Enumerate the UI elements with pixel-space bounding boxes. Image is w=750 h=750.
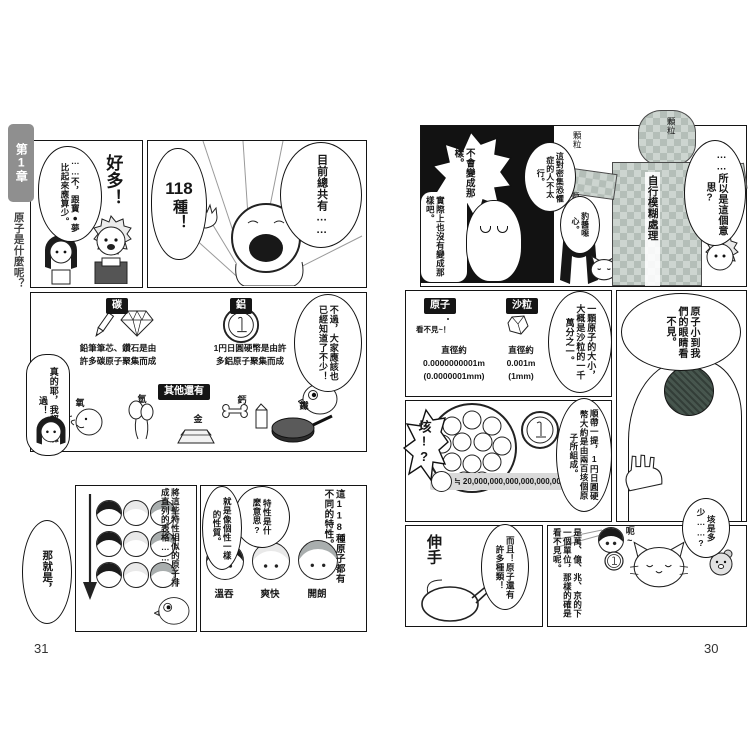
balloons-icon [126, 400, 156, 442]
sand-grain-icon [506, 314, 530, 336]
chapter-tab: 第1章 [8, 124, 34, 202]
sand-label: 沙粒 [506, 298, 538, 314]
reach-sfx: 伸手 [424, 534, 442, 565]
bird-mascot [154, 594, 192, 626]
total-text: 目前總共有…… [314, 152, 327, 238]
carbon-label: 碳 [106, 298, 128, 314]
gai-explanation: 是萬、億、兆、京的下一個單位，那樣的確是看不見呢。 [552, 528, 583, 620]
dark-sphere [664, 366, 714, 416]
mosaic-label: 自行模糊處理 [645, 172, 660, 286]
right-page-number: 30 [704, 641, 718, 656]
gai-question-bubble: 垓是多少……? [682, 498, 730, 558]
cat-character [628, 536, 690, 588]
frying-pan-icon [268, 410, 334, 444]
aluminum-caption-line2: 多鋁原子聚集而成 [216, 356, 284, 366]
bone-and-milk-icon [218, 400, 272, 432]
lead-out-text: 那就是， [41, 542, 54, 602]
ghost-mascot [466, 200, 522, 282]
burst-text: 不會變成那樣。 [452, 148, 475, 206]
traits-narration: 這118種原子都有不同的特性。 [322, 489, 345, 589]
atom-face [96, 500, 122, 526]
trait-question-bubble: 特性是什麼意思? [234, 486, 290, 548]
exclaim-text: 垓!? [416, 420, 432, 465]
manga-spread: 第1章 原子是什麼呢？ ……不，跟寶●夢比起來應算少。 好多！ 118 種！ 目… [0, 0, 750, 750]
trait-question-text: 特性是什麼意思? [252, 495, 272, 539]
atom-face [96, 531, 122, 557]
gai-question-text: 垓是多少……? [696, 506, 716, 550]
atom-face [96, 562, 122, 588]
reply-bubble: ……不，跟寶●夢比起來應算少。 [38, 146, 102, 242]
atom-d2: 0.0000000001m [423, 358, 485, 368]
grain-note: 顆粒 [666, 117, 676, 135]
total-bubble: 目前總共有…… [280, 142, 362, 248]
sand-diameter: 直徑約 0.001m (1mm) [486, 344, 556, 382]
count-unit: 種！ [170, 199, 188, 230]
gross-text: 豹醬噁心。 [570, 204, 589, 246]
more-elements-header: 其他還有 [158, 384, 210, 400]
atom-d3: (0.0000001mm) [424, 371, 485, 381]
trait-label-slow: 溫吞 [206, 586, 242, 600]
meaning-text: ……所以是這個意思? [703, 150, 727, 236]
atom-face [123, 500, 149, 526]
atom-face [123, 531, 149, 557]
carbon-caption-line2: 許多碳原子聚集而成 [80, 356, 157, 366]
grain-note: 顆粒 [572, 131, 582, 149]
atom-label: 原子 [424, 298, 456, 314]
gai-reply: 呃~ [624, 526, 635, 546]
girl-peek-head [32, 410, 70, 450]
known-text: 不過，大家應該也已經知道了不少！ [317, 303, 339, 383]
count-burst-bubble: 118 種！ [151, 148, 207, 260]
lead-out-bubble: 那就是， [22, 520, 72, 624]
breath-icon [64, 404, 104, 440]
peeking-head [598, 527, 624, 553]
bar-coin-icon [431, 471, 452, 492]
comparison-bubble: 一顆原子的大小，大概是沙粒的一千萬分之一。 [548, 291, 612, 393]
sand-d1: 直徑約 [508, 345, 534, 355]
aluminum-label: 鋁 [230, 298, 252, 314]
table-narration: 將這些特性相似的原子排成直列的表格…… [160, 488, 180, 588]
gold-bar-icon [176, 423, 216, 445]
chapter-title: 原子是什麼呢？ [12, 212, 25, 342]
invisible-bubble: 原子小到我們的眼睛看不見。 [621, 293, 741, 371]
carbon-caption-line1: 鉛筆筆芯、鑽石是由 [80, 343, 157, 353]
sand-d3: (1mm) [508, 371, 534, 381]
known-bubble: 不過，大家應該也已經知道了不少！ [294, 294, 362, 392]
trait-answer-bubble: 就是像個性一樣的性質。 [202, 486, 242, 570]
count-number: 118 [165, 179, 192, 199]
one-yen-coin-icon [520, 410, 560, 450]
atom-note: 看不見~！ [416, 324, 450, 335]
coin-atoms-bubble: 順帶一提，1円日圓硬幣大約是由兩百垓個原子所組成。 [556, 398, 612, 512]
pencil-icon [90, 310, 116, 342]
invisible-text: 原子小到我們的眼睛看不見。 [663, 302, 699, 362]
atom-face [123, 562, 149, 588]
trait-answer-text: 就是像個性一樣的性質。 [212, 495, 232, 561]
meaning-bubble: ……所以是這個意思? [684, 140, 746, 246]
sand-d2: 0.001m [507, 358, 536, 368]
ghost-text: 實際上也沒有變成那樣吧。 [425, 196, 445, 278]
atom-d1: 直徑約 [441, 345, 467, 355]
gross-bubble: 豹醬噁心。 [560, 196, 600, 254]
trait-label-frank: 爽快 [252, 586, 288, 600]
one-yen-coin-icon [604, 551, 624, 571]
more-kinds-text: 而且！原子還有許多種類！ [495, 533, 515, 601]
aluminum-caption-line1: 1円日圓硬幣是由許 [214, 343, 287, 353]
carbon-caption: 鉛筆筆芯、鑽石是由 許多碳原子聚集而成 [52, 342, 184, 368]
trypophobia-bubble: 這對密集恐懼症的人不太行。 [524, 142, 576, 212]
atom-dot [447, 318, 449, 320]
more-kinds-bubble: 而且！原子還有許多種類！ [481, 524, 529, 610]
shout-text: 好多！ [102, 154, 122, 207]
coin-atoms-text: 順帶一提，1円日圓硬幣大約是由兩百垓個原子所組成。 [569, 407, 600, 503]
left-page-number: 31 [34, 641, 48, 656]
comparison-text: 一顆原子的大小，大概是沙粒的一千萬分之一。 [564, 300, 596, 384]
reply-text: ……不，跟寶●夢比起來應算少。 [60, 154, 80, 234]
chapter-tab-label: 第1章 [14, 143, 28, 183]
trypophobia-text: 這對密集恐懼症的人不太行。 [536, 149, 565, 205]
